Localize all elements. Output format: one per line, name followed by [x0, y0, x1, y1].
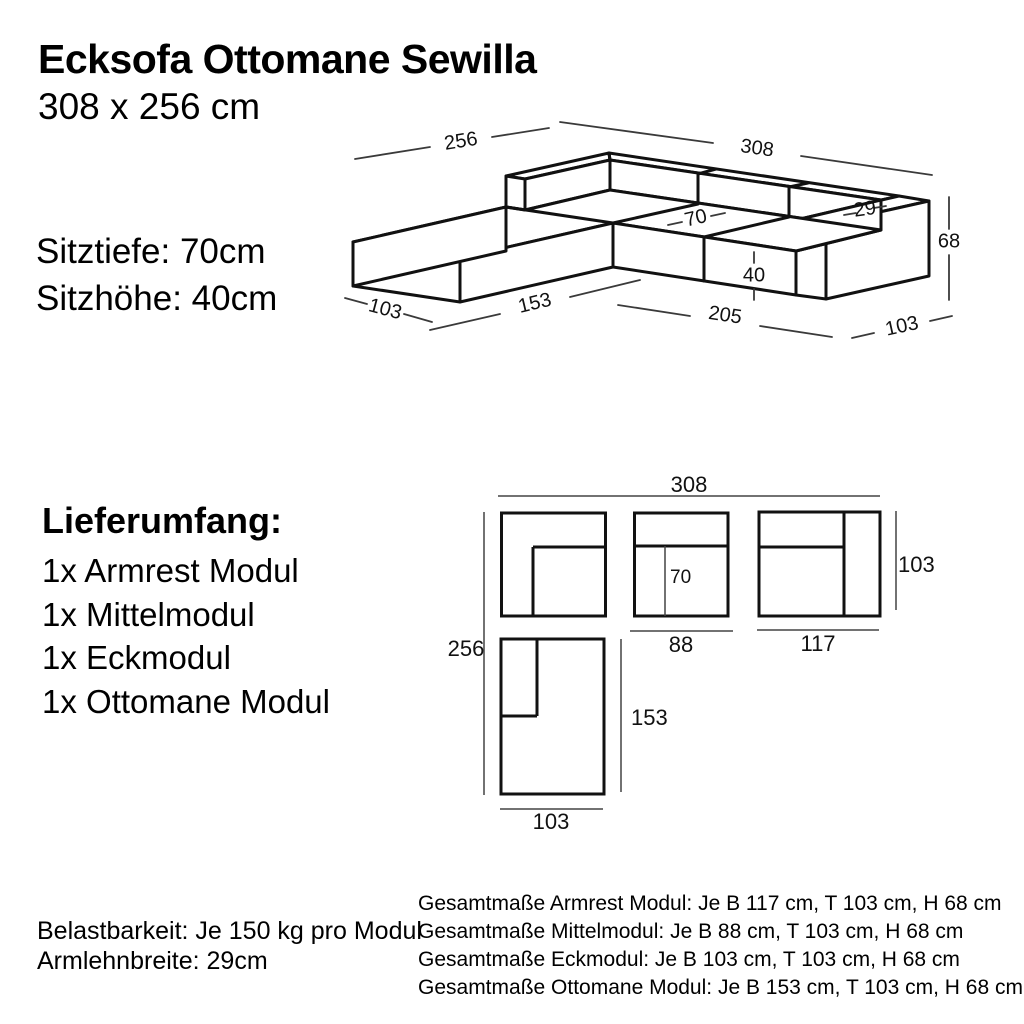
iso-dim-back-width: 308 — [739, 135, 775, 161]
technical-drawings: 256 308 68 29 70 40 205 153 103 103 308 … — [0, 0, 1024, 1024]
iso-dim-front-width: 205 — [707, 302, 743, 329]
iso-dim-armrest-width: 29 — [852, 197, 877, 222]
iso-dim-seat-height: 40 — [743, 264, 765, 286]
sofa-floorplan-drawing: 308 256 70 88 117 103 153 103 — [448, 472, 935, 834]
plan-armrest-module — [759, 512, 880, 616]
plan-corner-module — [502, 513, 606, 616]
plan-dim-middle-width: 88 — [669, 632, 693, 657]
plan-middle-module — [635, 513, 729, 616]
iso-dim-ottomane-front: 103 — [366, 294, 404, 324]
plan-dim-seat-depth: 70 — [670, 567, 691, 588]
plan-dim-ottomane-length: 153 — [631, 705, 668, 730]
plan-dim-total-depth: 256 — [448, 636, 485, 661]
plan-ottomane-module — [501, 639, 604, 794]
plan-dim-total-width: 308 — [671, 472, 708, 497]
product-dimension-sheet: Ecksofa Ottomane Sewilla 308 x 256 cm Si… — [0, 0, 1024, 1024]
plan-dim-armrest-width: 117 — [800, 631, 835, 656]
plan-dim-module-depth: 103 — [898, 552, 935, 577]
iso-dim-total-height: 68 — [938, 230, 960, 252]
sofa-isometric-drawing: 256 308 68 29 70 40 205 153 103 103 — [345, 122, 960, 341]
iso-dim-right-depth: 103 — [883, 312, 920, 341]
left-backrest-end-face — [506, 176, 525, 210]
iso-dim-ottomane-edge: 153 — [516, 289, 554, 318]
plan-dim-ottomane-width: 103 — [533, 809, 570, 834]
iso-dim-left-depth: 256 — [443, 128, 479, 155]
